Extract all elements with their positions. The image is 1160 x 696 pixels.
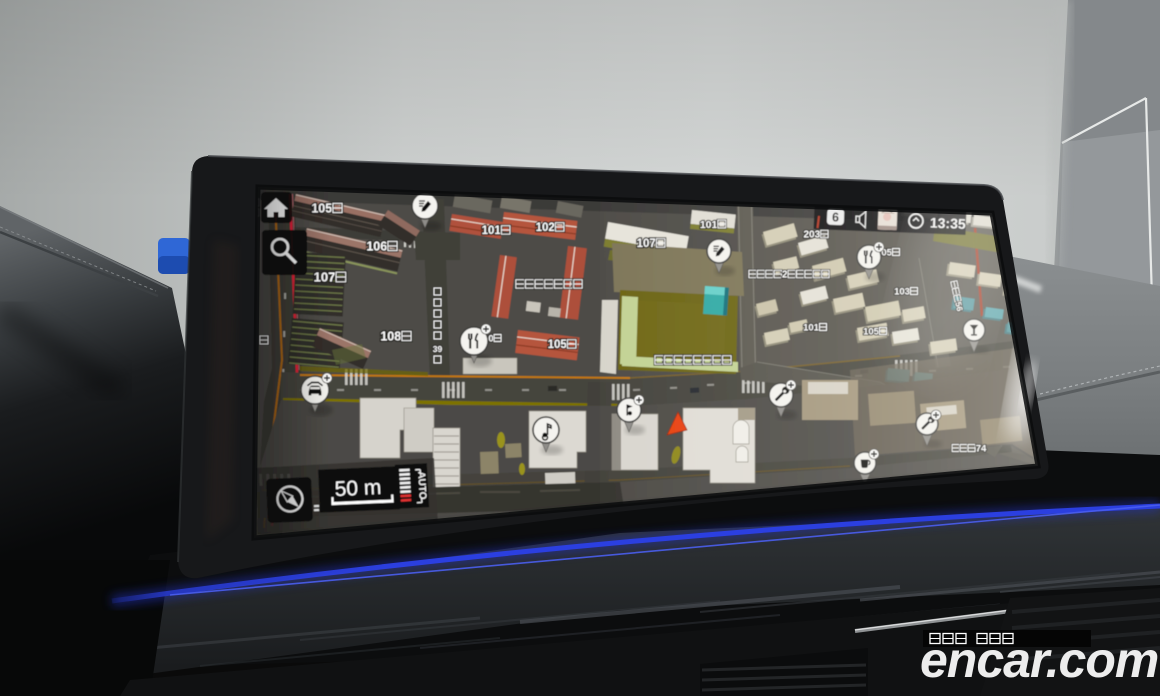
svg-text:102: 102	[536, 222, 555, 234]
svg-text:encar.com: encar.com	[920, 632, 1158, 688]
svg-text:39: 39	[433, 344, 443, 354]
svg-text:50 m: 50 m	[334, 476, 382, 501]
svg-text:106: 106	[366, 240, 387, 254]
svg-text:AUTO: AUTO	[415, 471, 427, 500]
svg-text:105: 105	[548, 339, 568, 351]
svg-text:0: 0	[488, 333, 493, 344]
svg-text:101: 101	[482, 225, 502, 237]
svg-text:108: 108	[380, 330, 401, 344]
